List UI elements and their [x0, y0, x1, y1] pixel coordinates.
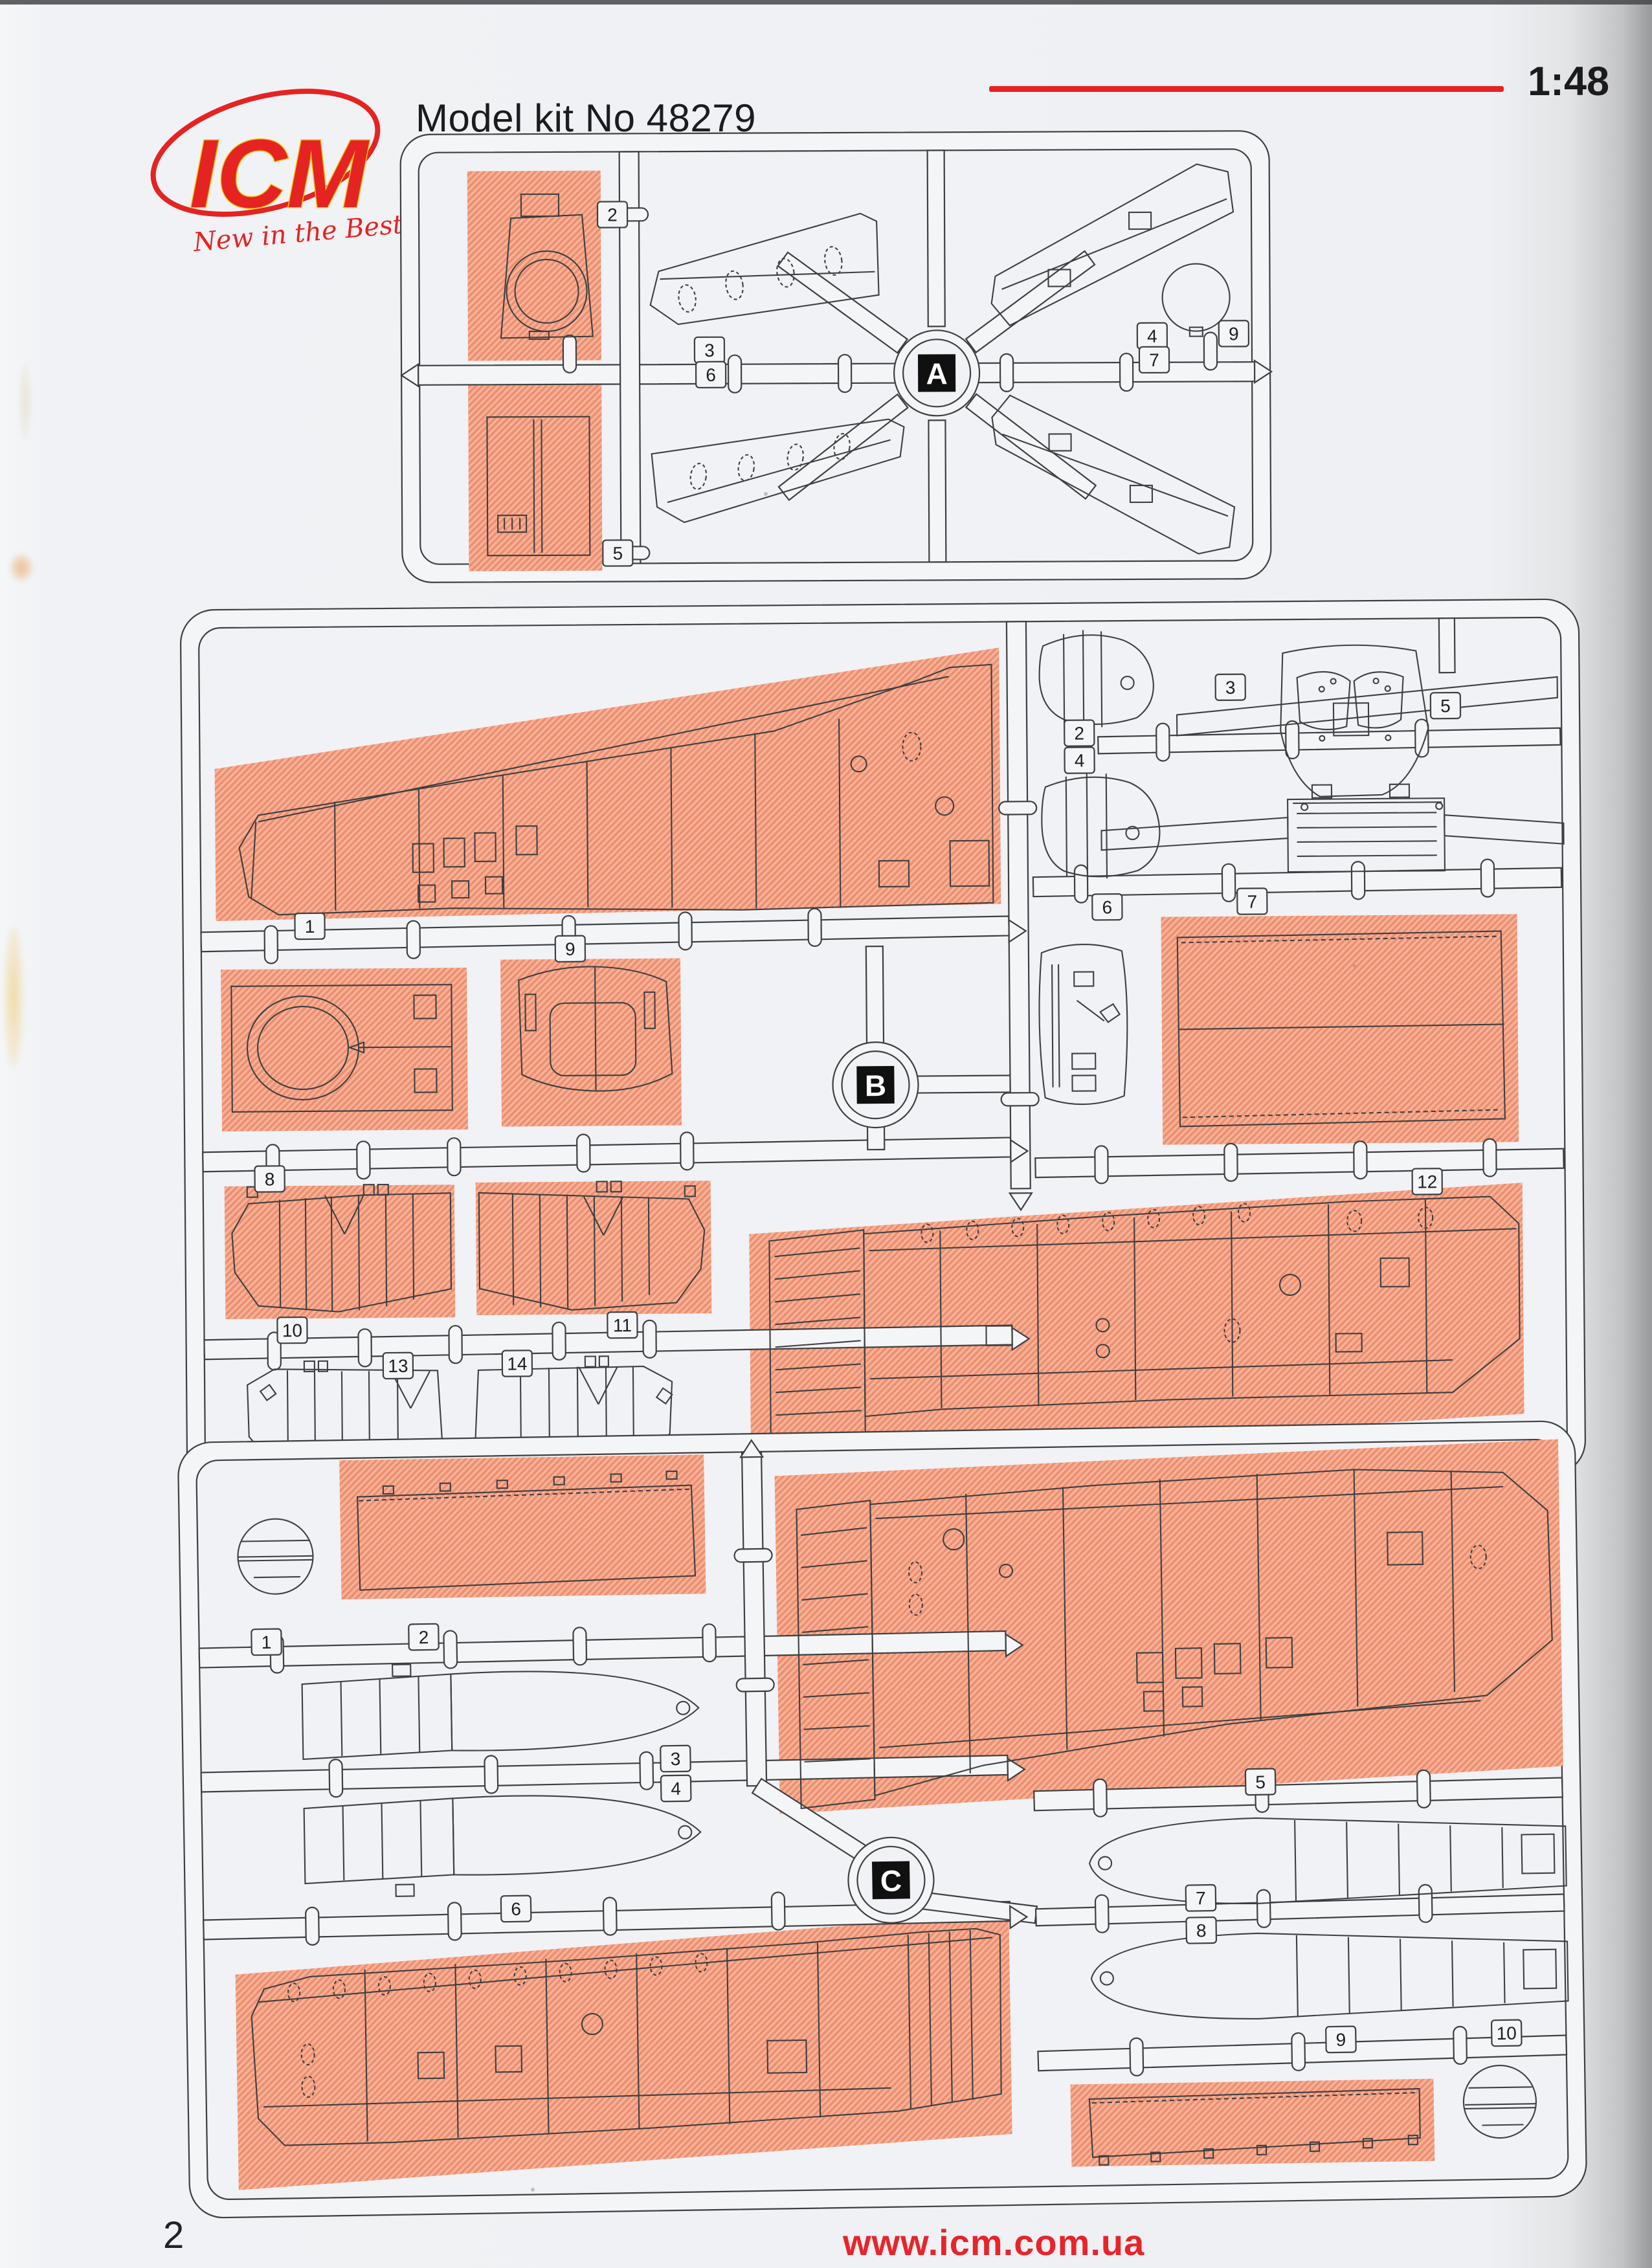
part-line-art	[1106, 773, 1107, 878]
sprue-gate	[678, 912, 691, 950]
sprue-diagram-a: A2345679	[387, 118, 1289, 594]
sprue-gate	[1000, 354, 1013, 392]
sprue-gate	[643, 1320, 656, 1358]
scan-smudge	[4, 926, 23, 1068]
icm-logo: ICM New in the Best	[133, 57, 405, 271]
sprue-gate	[357, 1141, 370, 1179]
scale-label: 1:48	[1528, 58, 1609, 105]
sprue-gate	[1120, 353, 1133, 391]
sprue-gate	[1419, 1885, 1433, 1922]
sprue-gate	[1291, 2033, 1305, 2071]
sprue-gate	[838, 355, 851, 392]
part-number-label: 8	[1196, 1920, 1207, 1940]
sprue-c-content: C12345678910	[178, 1421, 1587, 2218]
part-number-label: 3	[1225, 678, 1236, 698]
part-number-label: 5	[1440, 696, 1451, 716]
sprue-gate	[407, 921, 420, 959]
sprue-gate	[1417, 1770, 1431, 1808]
sprue-gate	[329, 1759, 342, 1797]
sprue-gate	[265, 926, 278, 963]
part-number-label: 9	[565, 939, 575, 959]
part-line-art	[533, 419, 534, 553]
part-line-art	[1066, 777, 1067, 876]
part-line-art	[280, 1199, 280, 1307]
part-number-label: 3	[670, 1749, 680, 1769]
sprue-gate	[772, 1892, 785, 1929]
header-rule	[989, 86, 1504, 92]
scan-top-edge	[0, 0, 1652, 5]
part-number-label: 1	[305, 917, 315, 937]
sprue-gate	[808, 909, 821, 946]
part-line-art	[306, 1198, 306, 1309]
part-number-label: 2	[1074, 724, 1084, 744]
scan-speck	[764, 492, 768, 496]
part-number-label: 9	[1229, 324, 1239, 344]
highlight-region	[500, 958, 682, 1126]
sprue-gate	[1156, 724, 1169, 761]
sprue-a-content: A2345679	[401, 131, 1273, 583]
sprue-gate	[1093, 1779, 1107, 1817]
part-line-art	[413, 1194, 414, 1300]
sprue-gate	[448, 1902, 462, 1940]
part-line-art	[386, 1195, 386, 1306]
part-number-label: 3	[704, 340, 715, 361]
part-number-label: 6	[511, 1899, 521, 1919]
sprue-gate	[737, 1678, 774, 1692]
sprue-gate	[573, 1627, 586, 1665]
part-number-label: 2	[418, 1627, 429, 1647]
part-line-art	[540, 1195, 541, 1307]
sprue-gate	[1095, 1895, 1109, 1933]
part-line-art	[1064, 634, 1064, 725]
part-number-label: 9	[1335, 2030, 1346, 2050]
sprue-gate	[306, 1907, 319, 1945]
part-line-art	[513, 1195, 513, 1306]
scan-speck	[1353, 964, 1356, 968]
sprue-gate	[484, 1755, 498, 1793]
part-line-art	[1052, 964, 1053, 1087]
highlight-region	[1070, 2079, 1434, 2167]
part-number-label: 4	[671, 1779, 681, 1799]
scanned-instruction-page: ICM New in the Best Model kit No 48279 1…	[0, 0, 1652, 2268]
sprue-gate	[1481, 860, 1494, 897]
part-number-label: 7	[1196, 1888, 1206, 1908]
sprue-gate	[1453, 2027, 1467, 2064]
sprue-letter: A	[926, 357, 947, 390]
part-line-art	[359, 1195, 359, 1310]
sprue-diagram-b: B1234567891011121314	[168, 586, 1599, 1497]
part-number-label: 7	[1149, 350, 1159, 370]
sprue-diagram-c: C12345678910	[164, 1408, 1600, 2232]
part-number-label: 1	[262, 1632, 272, 1652]
sprue-gate	[1095, 1146, 1108, 1183]
sprue-gate	[1130, 2038, 1143, 2076]
sprue-gate	[1354, 1141, 1367, 1179]
part-line-art	[254, 1577, 300, 1577]
part-line-art	[649, 1198, 649, 1295]
scan-smudge	[19, 362, 31, 440]
highlight-region	[225, 1184, 456, 1319]
sprue-gate	[1257, 1890, 1271, 1928]
sprue-gate	[1222, 864, 1235, 902]
part-line-art	[1087, 773, 1088, 880]
part-line-art	[594, 1197, 595, 1306]
sprue-gate	[447, 1138, 460, 1175]
sprue-gate	[1224, 1144, 1237, 1181]
sprue-gate	[1001, 1093, 1039, 1106]
sprue-gate	[577, 1135, 590, 1172]
sprue-gate	[640, 1752, 653, 1790]
highlight-region	[467, 171, 601, 361]
logo-text: ICM	[190, 119, 370, 228]
part-number-label: 14	[507, 1353, 527, 1373]
part-line-art	[1502, 1827, 1502, 1888]
sprue-runner	[928, 420, 946, 562]
part-line-art	[1058, 964, 1059, 1087]
page-number: 2	[163, 2214, 184, 2257]
part-line-art	[1083, 630, 1084, 729]
website-url: www.icm.com.ua	[843, 2221, 1144, 2263]
part-number-label: 5	[612, 543, 623, 563]
part-number-label: 10	[282, 1320, 302, 1340]
sprue-gate	[1286, 721, 1299, 759]
part-line-art	[1504, 1942, 1504, 2003]
sprue-letter: B	[865, 1069, 887, 1102]
sprue-b-content: B1234567891011121314	[181, 599, 1586, 1495]
scan-speck	[531, 2188, 535, 2192]
sprue-gate	[680, 1132, 693, 1170]
part-number-label: 4	[1147, 326, 1157, 346]
part-number-label: 6	[706, 365, 716, 385]
sprue-gate	[734, 1549, 772, 1562]
part-line-art	[1101, 631, 1102, 727]
sprue-runner	[928, 150, 945, 326]
part-number-label: 4	[1075, 751, 1085, 771]
part-number-label: 13	[388, 1356, 408, 1376]
part-number-label: 8	[265, 1169, 275, 1189]
sprue-gate	[1204, 332, 1217, 370]
sprue-gate	[552, 1322, 565, 1360]
sprue-gate	[999, 801, 1036, 814]
part-number-label: 7	[1247, 891, 1257, 911]
sprue-gate	[358, 1329, 371, 1366]
part-line-art	[335, 802, 335, 911]
part-number-label: 2	[607, 205, 618, 225]
part-line-art	[359, 1047, 452, 1047]
sprue-gate	[702, 1624, 716, 1662]
sprue-gate	[443, 1630, 457, 1668]
sprue-gate	[728, 355, 741, 393]
scan-smudge	[10, 554, 32, 581]
part-number-label: 11	[613, 1315, 632, 1335]
part-number-label: 10	[1496, 2023, 1517, 2043]
part-line-art	[331, 1197, 332, 1312]
sprue-gate	[1075, 865, 1088, 903]
part-line-art	[567, 1195, 568, 1309]
part-number-label: 6	[1102, 897, 1112, 917]
part-line-art	[621, 1197, 622, 1302]
sprue-gate	[603, 1897, 617, 1935]
sprue-gate	[1352, 862, 1365, 899]
sprue-runner	[910, 1075, 1010, 1093]
sprue-gate	[1415, 719, 1428, 757]
sprue-runner	[1439, 618, 1455, 673]
part-line-art	[1482, 2124, 1524, 2125]
sprue-gate	[449, 1326, 462, 1363]
part-line-art	[541, 419, 542, 553]
sprue-gate	[563, 335, 576, 373]
part-number-label: 5	[1255, 1772, 1266, 1792]
sprue-gate	[1483, 1139, 1496, 1177]
sprue-runner	[866, 946, 884, 1050]
sprue-letter: C	[880, 1864, 902, 1898]
part-number-label: 12	[1417, 1172, 1437, 1192]
